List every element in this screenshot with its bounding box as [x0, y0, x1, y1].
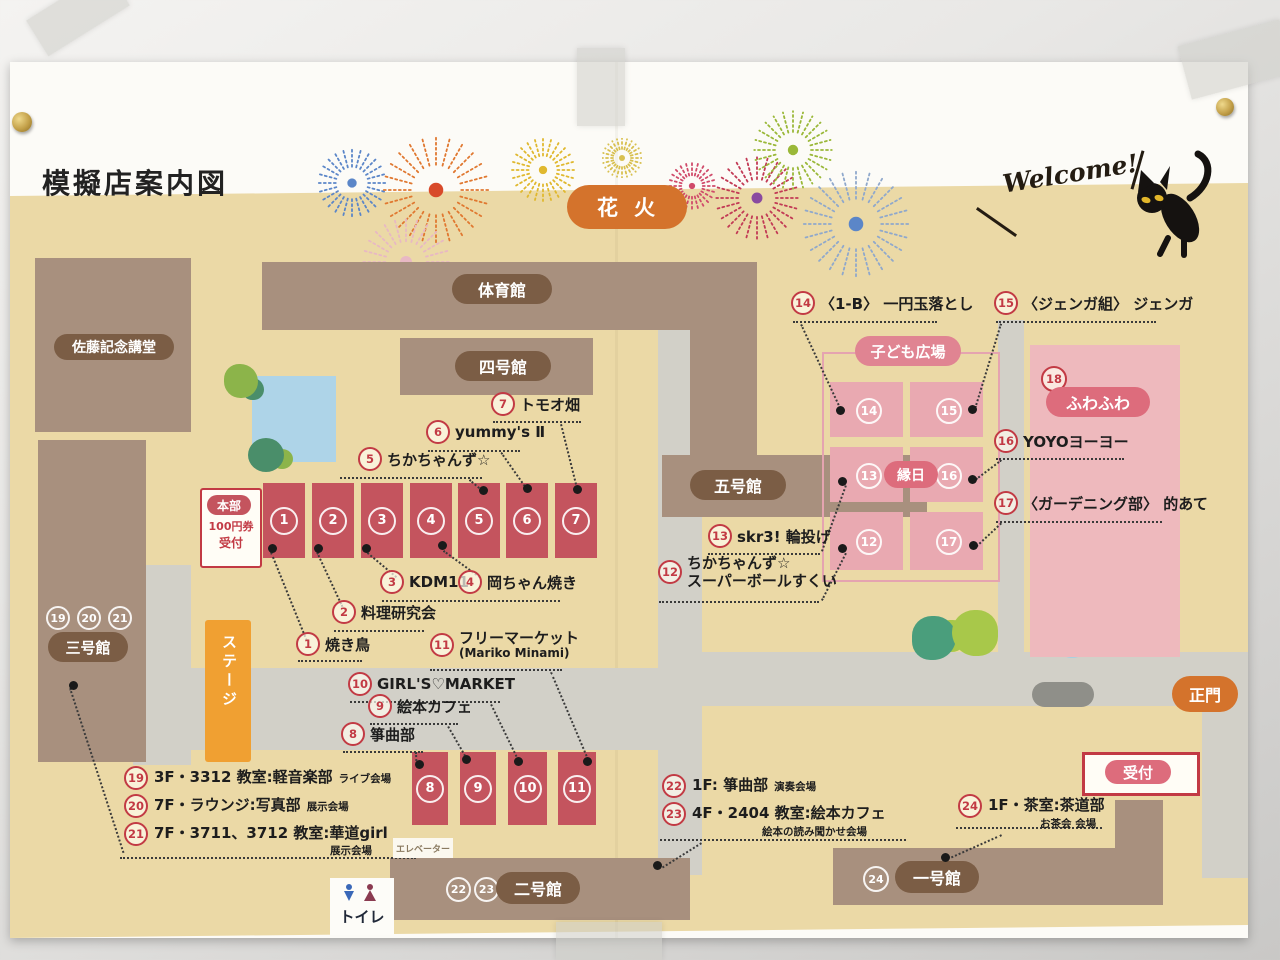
label-yoyo: 16YOYOヨーヨー: [994, 429, 1129, 453]
room-subtext: ライブ会場: [339, 771, 392, 786]
tape-bottom-center: [556, 922, 662, 960]
dotted-line: [793, 321, 937, 323]
leader-dot: [514, 757, 523, 766]
circled-number: 11: [430, 633, 454, 657]
leader-dot: [969, 541, 978, 550]
stall-number: 6: [513, 507, 541, 535]
main-gate-label: 正門: [1172, 676, 1238, 712]
stall-5: 5: [458, 483, 500, 558]
circled-number: 19: [124, 766, 148, 790]
label-text: 〈1-B〉 一円玉落とし: [820, 293, 973, 314]
label-girls-market: 10GIRL'S♡MARKET: [348, 672, 515, 696]
room-24-sub: お茶会 会場: [1040, 816, 1096, 831]
cell-number: 14: [856, 398, 882, 424]
cell-number: 17: [936, 529, 962, 555]
leader-dot: [268, 544, 277, 553]
building-label: 五号館: [690, 470, 786, 500]
stall-number: 11: [563, 775, 591, 803]
bush: [952, 610, 998, 656]
circled-19: 19: [46, 606, 70, 630]
label-text: yummy's Ⅱ: [455, 423, 545, 441]
room-text: 3F・3312 教室:軽音楽部: [154, 766, 333, 787]
stall-number: 4: [417, 507, 445, 535]
reception-box: 受付: [1082, 752, 1200, 796]
tape-top-right: [1178, 19, 1280, 99]
circled-22: 22: [446, 877, 471, 902]
stage-label: ステージ: [219, 634, 240, 710]
leader-dot: [362, 544, 371, 553]
pushpin-right: [1216, 98, 1234, 116]
circled-number: 24: [958, 794, 982, 818]
label-subtext: スーパーボールすくい: [687, 572, 837, 590]
leader-dot: [838, 477, 847, 486]
circled-number: 14: [791, 291, 815, 315]
label-text: GIRL'S♡MARKET: [377, 675, 515, 693]
label-superball: 12ちかちゃんず☆スーパーボールすくい: [658, 554, 837, 590]
circled-21: 21: [108, 606, 132, 630]
stall-6: 6: [506, 483, 548, 558]
leader-dot: [314, 544, 323, 553]
photo-festival-map: { "title": "模擬店案内図", "header": { "hanabi…: [0, 0, 1280, 960]
dotted-line: [458, 600, 560, 602]
building-label: 佐藤記念講堂: [54, 334, 174, 360]
label-text: 焼き鳥: [325, 634, 370, 655]
circled-number: 23: [662, 802, 686, 826]
dotted-line: [660, 839, 906, 841]
building-4: 四号館: [400, 338, 593, 395]
leader-dot: [968, 475, 977, 484]
circled-number: 8: [341, 722, 365, 746]
room-23: 234F・2404 教室:絵本カフェ: [662, 802, 886, 826]
circled-number: 15: [994, 291, 1018, 315]
circled-number: 2: [332, 600, 356, 624]
building-2-stall-numbers: 22 23: [446, 877, 499, 902]
label-text: 絵本カフェ: [397, 696, 472, 717]
cell-number: 16: [936, 463, 962, 489]
building-label: 体育館: [452, 274, 552, 304]
stall-number: 10: [514, 775, 542, 803]
stall-number: 5: [465, 507, 493, 535]
circled-number: 3: [380, 570, 404, 594]
label-text: YOYOヨーヨー: [1023, 431, 1129, 452]
label-kdm11: 3KDM11: [380, 570, 469, 594]
dotted-line: [340, 477, 482, 479]
leader-dot: [573, 485, 582, 494]
building-5-wing: [690, 262, 757, 462]
label-flea-market: 11フリーマーケット(Mariko Minami): [430, 630, 579, 660]
pushpin-left: [12, 112, 32, 132]
stall-7: 7: [555, 483, 597, 558]
circled-24: 24: [863, 866, 889, 892]
dotted-line: [343, 751, 423, 753]
circled-number: 6: [426, 420, 450, 444]
label-text: skr3! 輪投げ: [737, 526, 831, 547]
circled-number: 4: [458, 570, 482, 594]
room-subtext: 演奏会場: [774, 779, 816, 794]
room-21-sub: 展示会場: [330, 843, 372, 858]
building-label: 二号館: [496, 872, 580, 904]
room-text: 1F・茶室:茶道部: [988, 794, 1105, 815]
hq-label: 本部: [207, 495, 251, 515]
leader-dot: [968, 405, 977, 414]
building-label: 四号館: [455, 351, 551, 381]
dotted-line: [659, 601, 819, 603]
label-yakitori: 1焼き鳥: [296, 632, 370, 656]
room-subtext: 展示会場: [307, 799, 349, 814]
label-ryori: 2料理研究会: [332, 600, 436, 624]
room-text: 4F・2404 教室:絵本カフェ: [692, 802, 886, 823]
label-text: フリーマーケット: [459, 630, 579, 647]
ennichi-label: 縁日: [884, 461, 938, 488]
label-tomoo: 7トモオ畑: [491, 392, 580, 416]
leader-dot: [836, 406, 845, 415]
room-22: 221F: 箏曲部演奏会場: [662, 774, 816, 798]
circled-number: 22: [662, 774, 686, 798]
dotted-line: [996, 321, 1156, 323]
room-text: 7F・3711、3712 教室:華道girl: [154, 822, 388, 843]
room-24: 241F・茶室:茶道部: [958, 794, 1105, 818]
circled-number: 10: [348, 672, 372, 696]
building-label: 一号館: [895, 861, 979, 893]
hq-ticket-box: 本部 100円券 受付: [200, 488, 262, 568]
tape-top-center: [577, 48, 625, 126]
fuwafuwa-label: ふわふわ: [1046, 387, 1150, 417]
label-subtext: (Mariko Minami): [459, 647, 579, 660]
hq-line2: 受付: [202, 534, 260, 551]
stall-number: 7: [562, 507, 590, 535]
leader-dot: [941, 853, 950, 862]
building-2: 22 23 二号館: [390, 858, 690, 920]
room-text: 1F: 箏曲部: [692, 774, 768, 795]
leader-dot: [462, 755, 471, 764]
label-wanage: 13skr3! 輪投げ: [708, 524, 831, 548]
leader-dot: [523, 484, 532, 493]
car-on-road: [1032, 682, 1094, 707]
dotted-line: [996, 521, 1162, 523]
toilet-box: トイレ: [330, 878, 394, 935]
road-right-edge: [1202, 706, 1248, 878]
label-jenga: 15〈ジェンガ組〉 ジェンガ: [994, 291, 1193, 315]
room-19: 193F・3312 教室:軽音楽部ライブ会場: [124, 766, 391, 790]
label-text: トモオ畑: [520, 394, 580, 415]
leader-dot: [583, 757, 592, 766]
building-label: 三号館: [48, 632, 128, 662]
leader-dot: [69, 681, 78, 690]
male-icon: [344, 884, 354, 894]
page-title: 模擬店案内図: [42, 162, 228, 202]
circled-number: 21: [124, 822, 148, 846]
label-chikachanzu: 5ちかちゃんず☆: [358, 447, 490, 471]
circled-number: 5: [358, 447, 382, 471]
label-text: ちかちゃんず☆: [687, 554, 837, 572]
building-gym: 体育館: [262, 262, 757, 330]
room-23-sub: 絵本の読み聞かせ会場: [762, 824, 867, 839]
leader-dot: [653, 861, 662, 870]
elevator-label: エレベーター: [396, 842, 450, 855]
room-text: 7F・ラウンジ:写真部: [154, 794, 301, 815]
building-sato-hall: 佐藤記念講堂: [35, 258, 191, 432]
leader-dot: [415, 760, 424, 769]
reception-label: 受付: [1105, 760, 1171, 784]
circled-number: 7: [491, 392, 515, 416]
label-text: 〈ジェンガ組〉 ジェンガ: [1023, 293, 1193, 314]
kids-plaza-label: 子ども広場: [855, 336, 961, 366]
label-text: 料理研究会: [361, 602, 436, 623]
label-text: 箏曲部: [370, 724, 415, 745]
label-ichiendama: 14〈1-B〉 一円玉落とし: [791, 291, 973, 315]
building-3: 19 20 21 三号館: [38, 440, 146, 762]
hq-line1: 100円券: [202, 518, 260, 534]
black-cat-illustration: [1122, 148, 1218, 258]
building-1-annex: [1115, 800, 1163, 848]
female-icon: [364, 884, 376, 894]
building-1: 24 一号館: [833, 848, 1163, 905]
stall-number: 3: [368, 507, 396, 535]
dotted-line: [298, 660, 362, 662]
stage: ステージ: [205, 620, 251, 762]
label-text: 〈ガーデニング部〉 的あて: [1023, 493, 1208, 514]
stall-number: 1: [270, 507, 298, 535]
label-mato-ate: 17〈ガーデニング部〉 的あて: [994, 491, 1208, 515]
room-20: 207F・ラウンジ:写真部展示会場: [124, 794, 349, 818]
cell-number: 13: [856, 463, 882, 489]
label-okachan: 4岡ちゃん焼き: [458, 570, 577, 594]
leader-dot: [838, 544, 847, 553]
label-yummys: 6yummy's Ⅱ: [426, 420, 545, 444]
road-main-horizontal: [658, 652, 1248, 706]
circled-number: 16: [994, 429, 1018, 453]
building-3-stall-numbers: 19 20 21: [46, 606, 132, 630]
hanabi-label: 花火: [567, 185, 687, 229]
stall-number: 8: [416, 775, 444, 803]
dotted-line: [430, 669, 562, 671]
tape-top-left: [26, 0, 130, 56]
cell-number: 12: [856, 529, 882, 555]
stall-number: 2: [319, 507, 347, 535]
label-text: 岡ちゃん焼き: [487, 572, 577, 593]
toilet-label: トイレ: [330, 906, 394, 927]
label-text: ちかちゃんず☆: [387, 449, 490, 470]
label-sokyoku: 8箏曲部: [341, 722, 415, 746]
bush: [248, 438, 284, 472]
circled-20: 20: [77, 606, 101, 630]
label-ehon-cafe: 9絵本カフェ: [368, 694, 472, 718]
stall-number: 9: [464, 775, 492, 803]
cell-number: 15: [936, 398, 962, 424]
leader-dot: [438, 541, 447, 550]
circled-number: 13: [708, 524, 732, 548]
circled-number: 12: [658, 560, 682, 584]
bush: [224, 364, 258, 398]
circled-number: 9: [368, 694, 392, 718]
leader-dot: [479, 486, 488, 495]
circled-number: 20: [124, 794, 148, 818]
dotted-line: [996, 458, 1124, 460]
circled-number: 1: [296, 632, 320, 656]
circled-number: 17: [994, 491, 1018, 515]
elevator-box: エレベーター: [393, 838, 453, 858]
